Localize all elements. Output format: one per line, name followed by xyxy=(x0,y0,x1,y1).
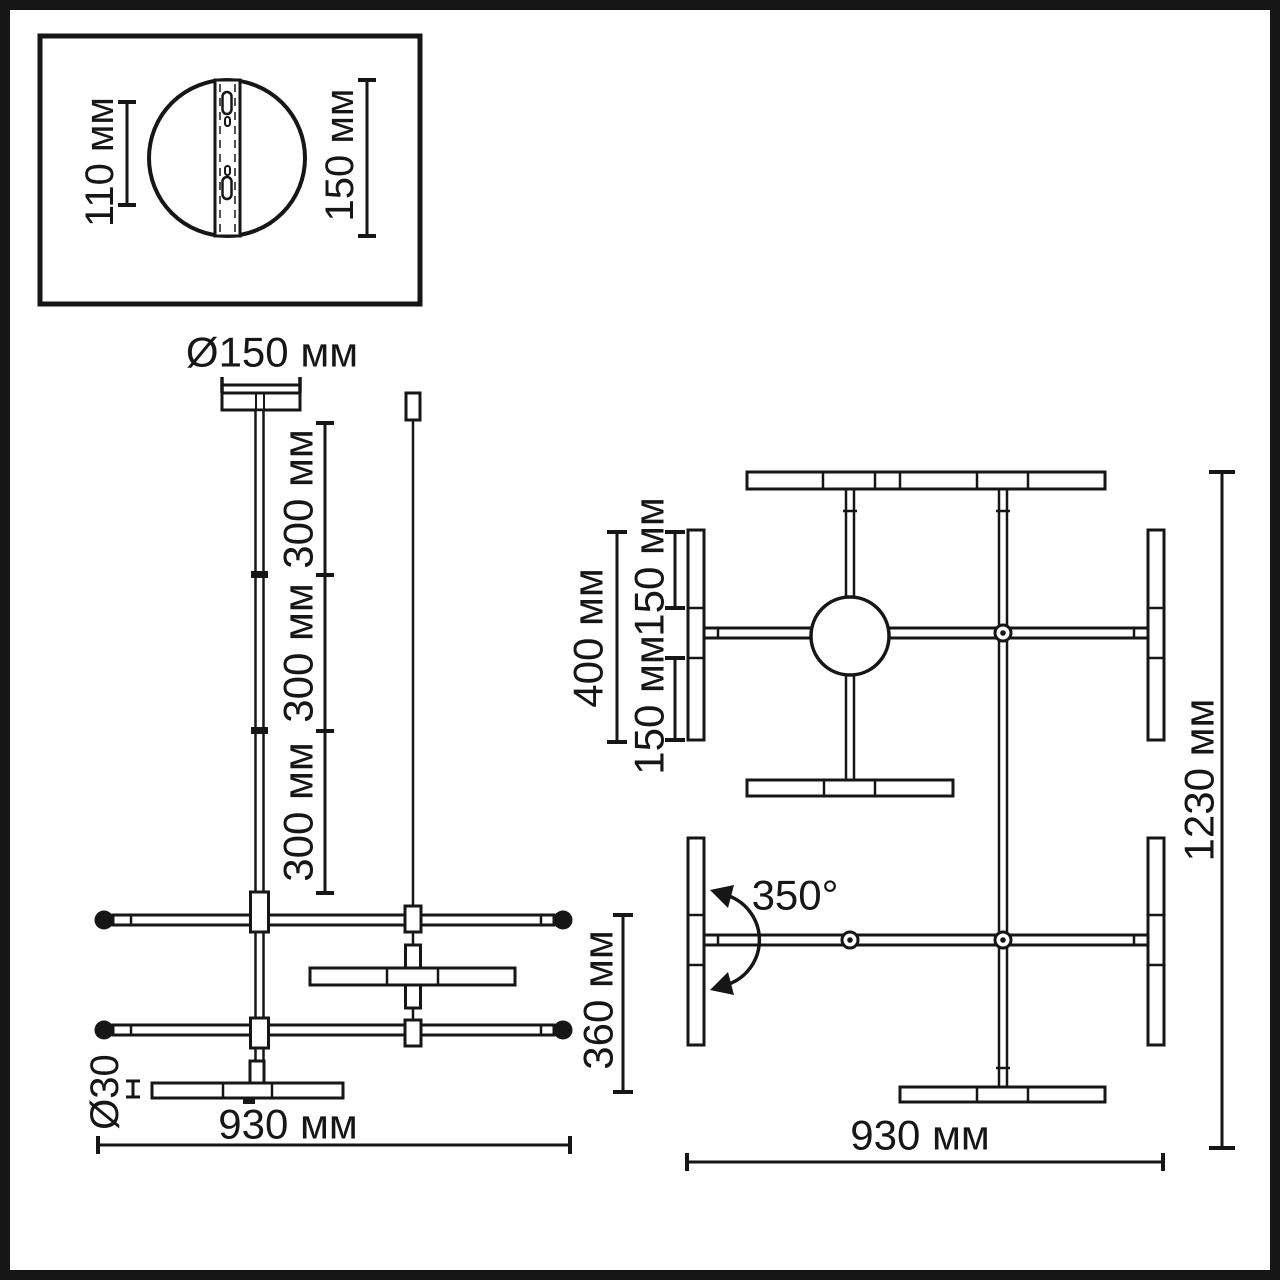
dim-label-400mm: 400 мм xyxy=(565,568,612,708)
rod-joint-mark xyxy=(251,727,268,734)
arm-rod-sleeve xyxy=(251,892,269,932)
dim-label-300mm-1: 300 мм xyxy=(275,429,322,569)
bottom-lamp-bar-plan xyxy=(900,1087,1105,1102)
mounting-hole xyxy=(225,166,230,175)
chandelier-dimension-drawing: 110 мм 150 мм Ø150 мм xyxy=(0,0,1280,1280)
dim-label-300mm-3: 300 мм xyxy=(275,742,322,882)
mounting-slot xyxy=(223,92,232,114)
mounting-hole xyxy=(225,117,230,126)
arm-rod-sleeve xyxy=(405,906,421,932)
mounting-slot xyxy=(223,177,232,199)
bottom-bar-stub xyxy=(250,1061,264,1084)
technical-drawing-page: 110 мм 150 мм Ø150 мм xyxy=(0,0,1280,1280)
secondary-rod-top-cap xyxy=(406,393,420,420)
dim-label-150mm-upper: 150 мм xyxy=(626,497,673,637)
dim-label-150mm: 150 мм xyxy=(318,89,362,222)
dim-rod-sections: 300 мм 300 мм 300 мм xyxy=(275,423,334,893)
dim-label-930mm-plan: 930 мм xyxy=(850,1112,990,1159)
arm-rod-sleeve xyxy=(405,1020,421,1046)
lamp-end-cap xyxy=(554,1021,573,1040)
lamp-end-cap xyxy=(554,911,573,930)
right-lamp-bar-lower xyxy=(1148,838,1164,1045)
rod-joint-mark xyxy=(251,571,268,578)
dim-block-height: 360 мм xyxy=(575,915,633,1092)
dim-label-930mm-side: 930 мм xyxy=(218,1101,358,1148)
below-circle-lamp-bar xyxy=(747,780,953,796)
canopy-circle-plan xyxy=(811,597,889,675)
canopy-rod-plan-lower xyxy=(846,674,854,780)
swivel-joint xyxy=(995,932,1011,948)
right-lamp-bar-upper xyxy=(1148,530,1164,740)
cross-arm-lower xyxy=(704,935,1148,945)
lamp-end-cap xyxy=(95,1021,114,1040)
left-lamp-bar-upper xyxy=(688,530,704,740)
swivel-joint xyxy=(842,932,858,948)
dim-label-d30: Ø30 xyxy=(83,1054,127,1130)
dim-label-150mm-lower: 150 мм xyxy=(626,635,673,775)
main-suspension-rod xyxy=(256,410,264,1062)
lamp-end-cap xyxy=(95,911,114,930)
canopy-rod-plan xyxy=(846,489,854,598)
rod-sleeve xyxy=(406,945,421,968)
dim-label-110mm: 110 мм xyxy=(78,97,122,227)
long-rod-plan xyxy=(999,489,1007,1088)
middle-lamp-bar xyxy=(310,968,515,985)
dim-label-360mm: 360 мм xyxy=(575,930,622,1070)
dim-canopy-150: 150 мм xyxy=(318,80,376,236)
swivel-joint xyxy=(995,625,1011,641)
dim-label-1230mm: 1230 мм xyxy=(1176,699,1223,862)
left-lamp-bar-lower xyxy=(688,838,704,1045)
dim-label-300mm-2: 300 мм xyxy=(275,583,322,723)
ceiling-canopy xyxy=(222,393,300,410)
arm-rod-sleeve xyxy=(251,1018,269,1048)
dim-label-350deg: 350° xyxy=(752,872,839,919)
top-lamp-bar xyxy=(747,472,1105,489)
rod-sleeve xyxy=(406,985,421,1008)
cross-arm-upper xyxy=(704,628,1148,638)
dim-label-canopy-diameter: Ø150 мм xyxy=(186,329,358,376)
